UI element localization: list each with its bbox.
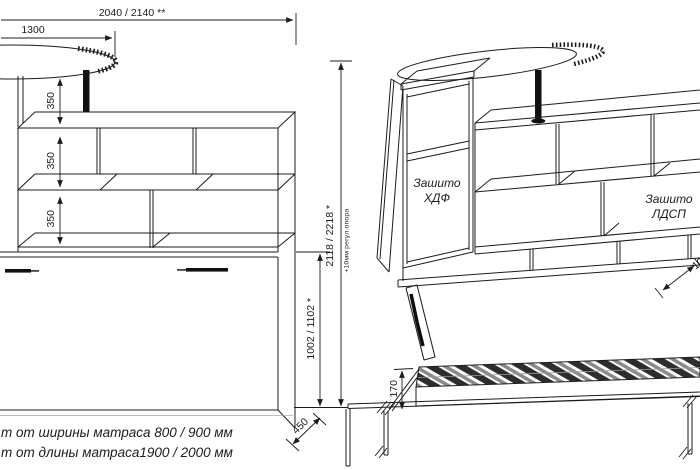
dim-table-width: 1300 bbox=[8, 25, 58, 37]
shelf-unit-side bbox=[475, 90, 700, 270]
handle bbox=[5, 268, 228, 273]
dim-bed-cabinet-height: 1002 / 1102 * bbox=[306, 283, 318, 375]
furniture-technical-drawing: 2040 / 2140 ** 1300 350 350 350 1002 / 1… bbox=[0, 0, 700, 470]
label-backpanel-hdf: Зашито ХДФ bbox=[406, 176, 468, 206]
footnote-mattress-length: т от длины матраса1900 / 2000 мм bbox=[1, 446, 233, 461]
bed-slats bbox=[416, 357, 700, 387]
dim-frame-height: 170 bbox=[389, 374, 401, 404]
dim-total-height: 2118 / 2218 * bbox=[325, 190, 337, 282]
dim-total-height-note: +10мм регул.опора bbox=[343, 195, 350, 287]
bed-leg bbox=[346, 403, 692, 466]
table-leg-side bbox=[531, 70, 545, 124]
dim-shelf-spacing-3: 350 bbox=[46, 195, 58, 243]
bed-front-panel bbox=[0, 252, 295, 428]
table-top-side bbox=[396, 41, 603, 87]
dim-total-width: 2040 / 2140 ** bbox=[62, 8, 202, 20]
table-top bbox=[0, 45, 116, 79]
label-backpanel-ldsp: Зашито ЛДСП bbox=[636, 192, 700, 222]
floor-marks bbox=[375, 446, 691, 459]
cabinet-door bbox=[377, 79, 403, 272]
tall-cabinet bbox=[401, 58, 490, 268]
dim-shelf-spacing-2: 350 bbox=[46, 137, 58, 185]
bed-box-rail bbox=[398, 258, 700, 287]
table-edge-banding bbox=[552, 45, 603, 64]
footnote-mattress-width: т от ширины матраса 800 / 900 мм bbox=[1, 426, 233, 441]
dim-shelf-spacing-1: 350 bbox=[46, 77, 58, 125]
